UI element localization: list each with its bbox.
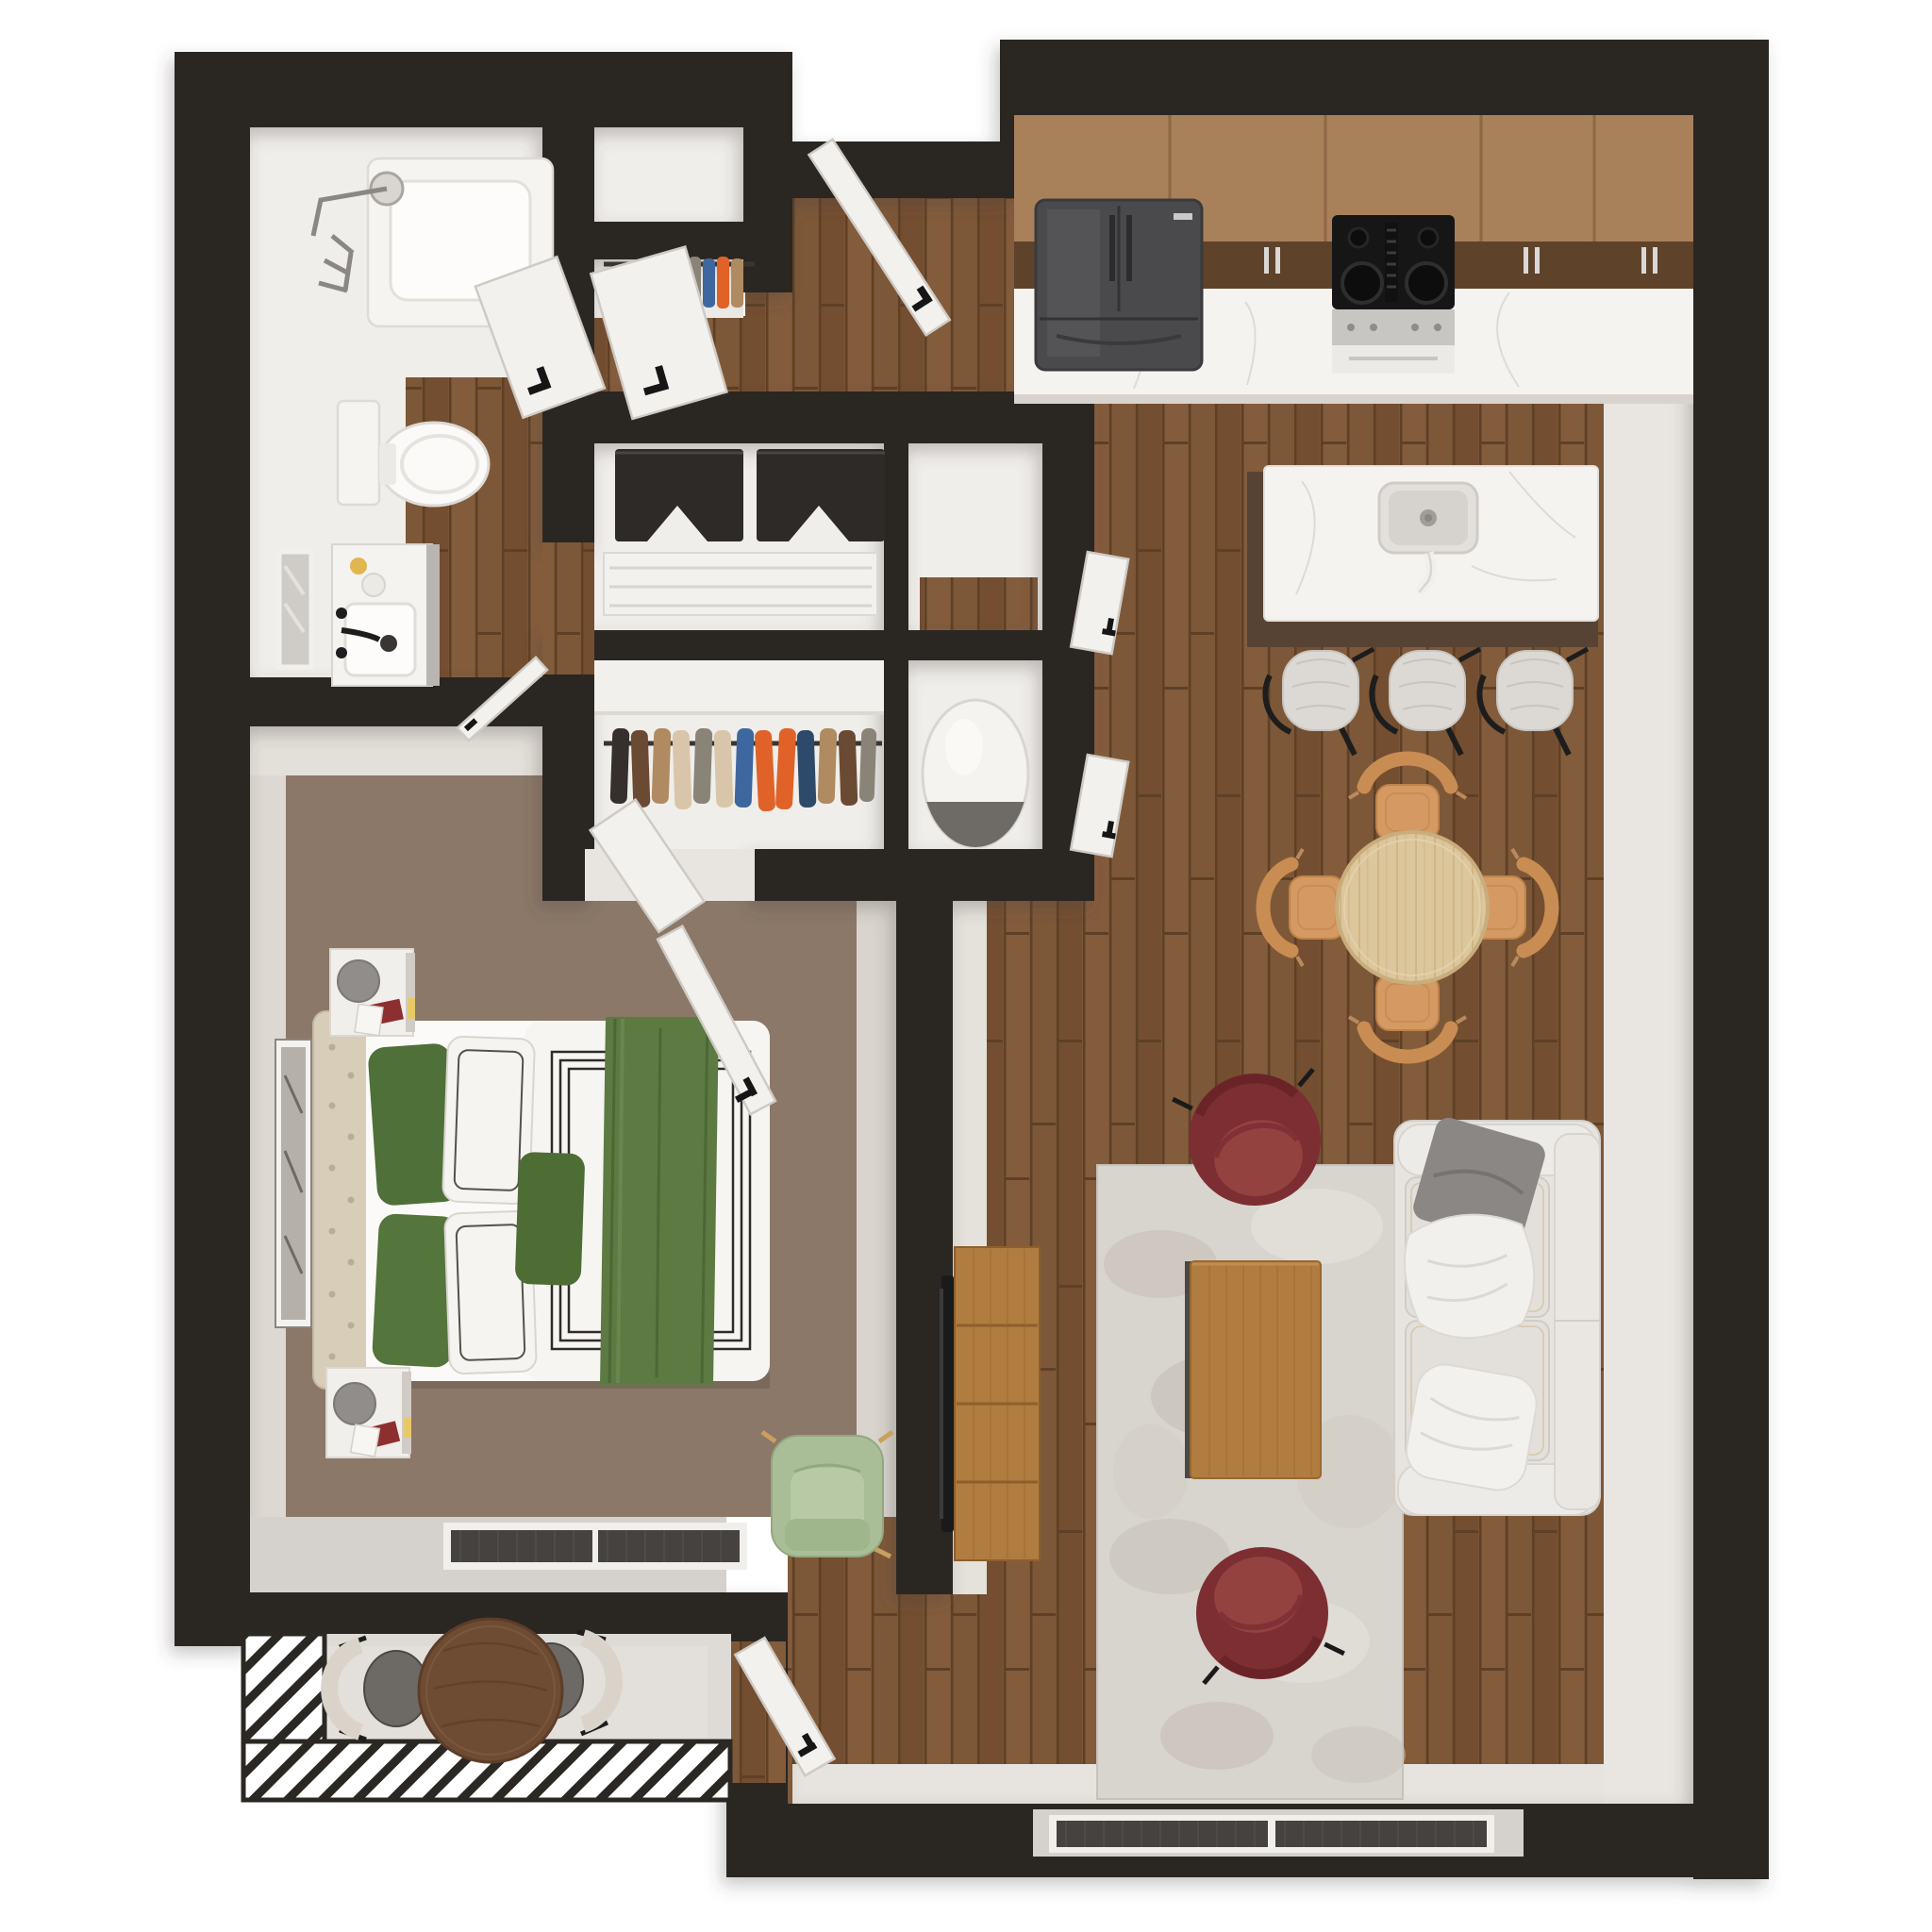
cooktop-range <box>1332 215 1455 374</box>
wall-closet-block-top <box>542 391 1094 443</box>
bathroom-threshold-wood <box>542 542 594 675</box>
wall-top-left <box>175 52 792 127</box>
walkin-closet-shelf <box>594 660 884 713</box>
wall-bedroom-north-b <box>755 849 1094 901</box>
lamp-glow-2 <box>404 1417 411 1438</box>
leaning-mirror <box>279 552 311 667</box>
wood-floor-hall-join <box>745 292 811 391</box>
bedroom-wall-base-top <box>250 726 542 775</box>
toilet-hinge <box>379 443 396 485</box>
bedroom-window-pane-right <box>598 1530 740 1562</box>
bedroom-window-pane-left <box>451 1530 592 1562</box>
balcony-table <box>419 1619 562 1762</box>
toilet-tank <box>338 401 379 505</box>
wall-entry-north <box>745 142 1015 198</box>
balcony <box>243 1619 731 1800</box>
lamp-glow <box>408 998 415 1019</box>
wall-right-outer <box>1693 40 1769 1879</box>
tv-screen-edge <box>940 1289 943 1519</box>
nightstand-top <box>330 949 415 1036</box>
sink-handle2-icon <box>336 647 347 658</box>
wall-left-outer <box>175 52 250 1646</box>
wall-bedroom-north-a <box>542 849 585 901</box>
wall-kitchen-join <box>1000 115 1015 198</box>
sink-handle-icon <box>336 608 347 619</box>
bedroom-window <box>250 1517 747 1592</box>
sofa <box>1394 1115 1600 1515</box>
refrigerator <box>1036 200 1202 370</box>
white-card <box>355 1004 383 1035</box>
bedroom-wall-base-right <box>857 901 896 1517</box>
green-throw-runner <box>600 1017 719 1385</box>
sage-armchair <box>762 1432 892 1557</box>
coffee-table <box>1185 1261 1321 1478</box>
nook-wood-patch <box>920 577 1038 630</box>
counter-front-shadow <box>1014 394 1693 404</box>
floor-plan-render <box>0 0 1932 1932</box>
living-wall-base-right <box>1604 401 1693 1804</box>
vanity-side-edge <box>426 544 440 686</box>
wall-top-kitchen <box>1000 40 1769 115</box>
floor-plan-svg <box>0 0 1932 1932</box>
nightstand-tray <box>338 960 379 1002</box>
wall-closet-mid-horizontal <box>542 630 1047 660</box>
vanity-flowers-icon <box>350 558 367 575</box>
sink-drain-icon <box>380 635 397 652</box>
sofa-pillow-white-bottom <box>1402 1360 1541 1494</box>
white-card-2 <box>351 1424 380 1457</box>
living-window <box>1033 1809 1524 1857</box>
pillow-green-accent <box>515 1152 586 1286</box>
leaning-art-frame <box>275 1040 311 1327</box>
vanity-sink-basin <box>345 604 415 675</box>
bed <box>313 1011 770 1389</box>
laundry-shelf <box>604 553 877 615</box>
nightstand-bottom <box>326 1368 411 1457</box>
nightstand-tray-2 <box>334 1383 375 1424</box>
linen-closet-interior <box>594 127 743 222</box>
tv-console <box>955 1247 1040 1560</box>
headboard <box>313 1011 368 1389</box>
kitchen-island <box>1247 466 1598 647</box>
dining-table <box>1337 832 1488 983</box>
vanity-vase <box>362 574 385 596</box>
